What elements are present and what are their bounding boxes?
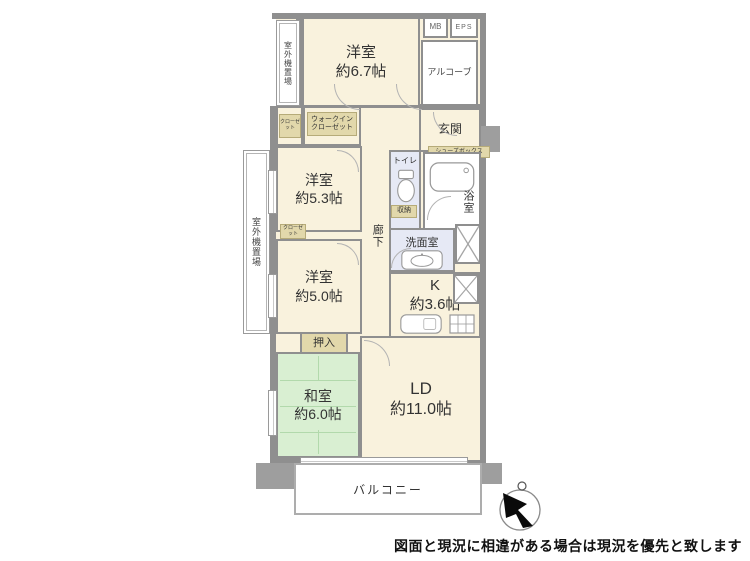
mb-label: MB [430, 22, 442, 32]
kitchen-sink-icon [399, 313, 443, 335]
toilet-icon [394, 167, 418, 205]
stove-icon [449, 314, 475, 334]
alcove-label: アルコーブ [427, 67, 471, 79]
corridor-label: 廊下 [370, 224, 383, 248]
balcony: バルコニー [294, 463, 482, 515]
balcony-label: バルコニー [296, 481, 480, 498]
storage-xbox-lower [453, 274, 479, 304]
oshiire: 押入 [300, 332, 348, 354]
room-western-5-0-size: 約5.0帖 [295, 287, 342, 305]
floor-plan: 室外機置場 室外機置場 洋室 約6.7帖 MB EPS アルコーブ 玄関 クロー… [0, 0, 750, 561]
kitchen-name: K [430, 276, 440, 296]
room-western-5-0-name: 洋室 [305, 268, 333, 286]
compass-north-icon [494, 477, 546, 535]
window-left-2 [268, 274, 277, 318]
storage-xbox-upper [455, 224, 481, 264]
x-hatch-icon [455, 276, 477, 302]
bathtub-icon [428, 160, 476, 194]
oshiire-label: 押入 [313, 336, 335, 350]
closet-lower-label: クローゼット [281, 226, 305, 238]
outdoor-unit-top-label: 室外機置場 [283, 41, 294, 86]
x-hatch-icon [457, 226, 479, 262]
closet-upper-label-chip: クローゼット [279, 114, 301, 138]
eps-label: EPS [455, 23, 472, 32]
toilet-label: トイレ [391, 155, 419, 166]
room-ld-name: LD [410, 378, 432, 400]
window-left-3 [268, 390, 277, 436]
window-left-1 [268, 170, 277, 214]
storage-label: 収納 [397, 207, 411, 215]
room-western-6-7-size: 約6.7帖 [336, 62, 387, 82]
walk-in-closet-label: ウォークインクローゼット [308, 116, 356, 132]
room-western-5-3-name: 洋室 [305, 171, 333, 189]
walk-in-closet-label-chip: ウォークインクローゼット [307, 112, 357, 136]
toilet-room: トイレ [389, 150, 421, 230]
eps-box: EPS [450, 17, 478, 38]
column-balcony-left [256, 463, 296, 489]
room-japanese-name: 和室 [304, 387, 332, 405]
alcove: アルコーブ [421, 40, 478, 106]
washroom-label: 洗面室 [391, 234, 453, 250]
room-japanese-size: 約6.0帖 [294, 405, 341, 423]
mb-box: MB [423, 17, 448, 38]
outdoor-unit-space-top: 室外機置場 [276, 20, 300, 106]
storage-chip: 収納 [391, 205, 417, 218]
room-ld-size: 約11.0帖 [390, 400, 452, 421]
room-western-6-7-name: 洋室 [346, 43, 376, 63]
closet-lower-label-chip: クローゼット [280, 224, 306, 239]
room-western-5-3-size: 約5.3帖 [295, 189, 342, 207]
room-japanese: 和室 約6.0帖 [276, 352, 360, 458]
bathroom-label: 浴室 [460, 190, 476, 214]
closet-upper-label: クローゼット [280, 120, 300, 132]
outdoor-unit-space-left: 室外機置場 [243, 150, 270, 334]
disclaimer-text: 図面と現況に相違がある場合は現況を優先と致します [394, 536, 742, 556]
outdoor-unit-left-label: 室外機置場 [250, 217, 263, 267]
